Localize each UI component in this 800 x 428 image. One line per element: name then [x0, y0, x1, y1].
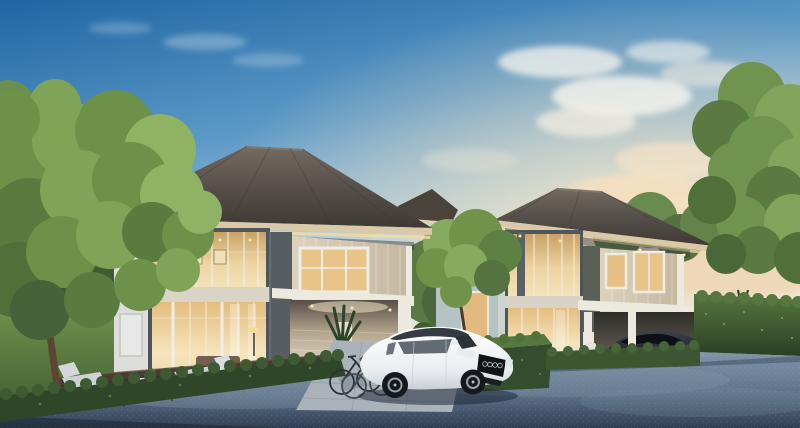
- left-house-floor-band: [148, 287, 270, 302]
- scene-canvas: [0, 0, 800, 428]
- tall-hedge-wall: [694, 290, 800, 356]
- right-house-floor-band: [505, 296, 583, 308]
- left-house-side-window-2: [120, 314, 142, 356]
- right-house-lit-window-1: [606, 254, 626, 288]
- left-house-lit-corner-window: [300, 248, 368, 292]
- architectural-rendering: [0, 0, 800, 428]
